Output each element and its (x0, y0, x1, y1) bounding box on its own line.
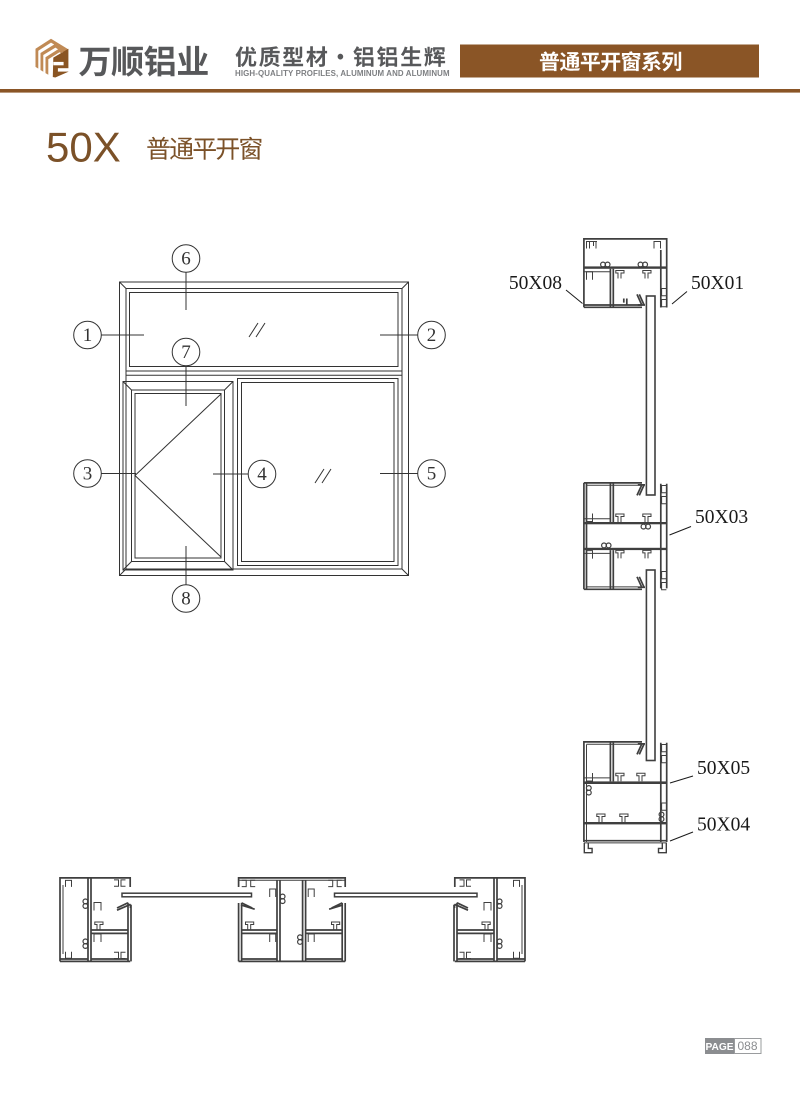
svg-text:PAGE: PAGE (705, 1042, 733, 1053)
svg-text:2: 2 (427, 325, 437, 346)
svg-text:3: 3 (83, 464, 93, 485)
svg-text:50X04: 50X04 (697, 815, 750, 836)
svg-text:1: 1 (83, 325, 93, 346)
svg-text:50X05: 50X05 (697, 758, 750, 779)
svg-text:HIGH-QUALITY PROFILES, ALUMINU: HIGH-QUALITY PROFILES, ALUMINUM AND ALUM… (235, 69, 450, 78)
svg-text:50X03: 50X03 (695, 507, 748, 528)
svg-text:4: 4 (257, 464, 267, 485)
svg-text:50X08: 50X08 (509, 273, 562, 294)
svg-text:50X: 50X (46, 124, 121, 171)
svg-text:6: 6 (181, 249, 191, 270)
svg-text:50X01: 50X01 (691, 273, 744, 294)
svg-text:7: 7 (181, 342, 191, 363)
svg-text:8: 8 (181, 589, 191, 610)
svg-text:088: 088 (737, 1039, 757, 1053)
svg-text:5: 5 (427, 464, 437, 485)
